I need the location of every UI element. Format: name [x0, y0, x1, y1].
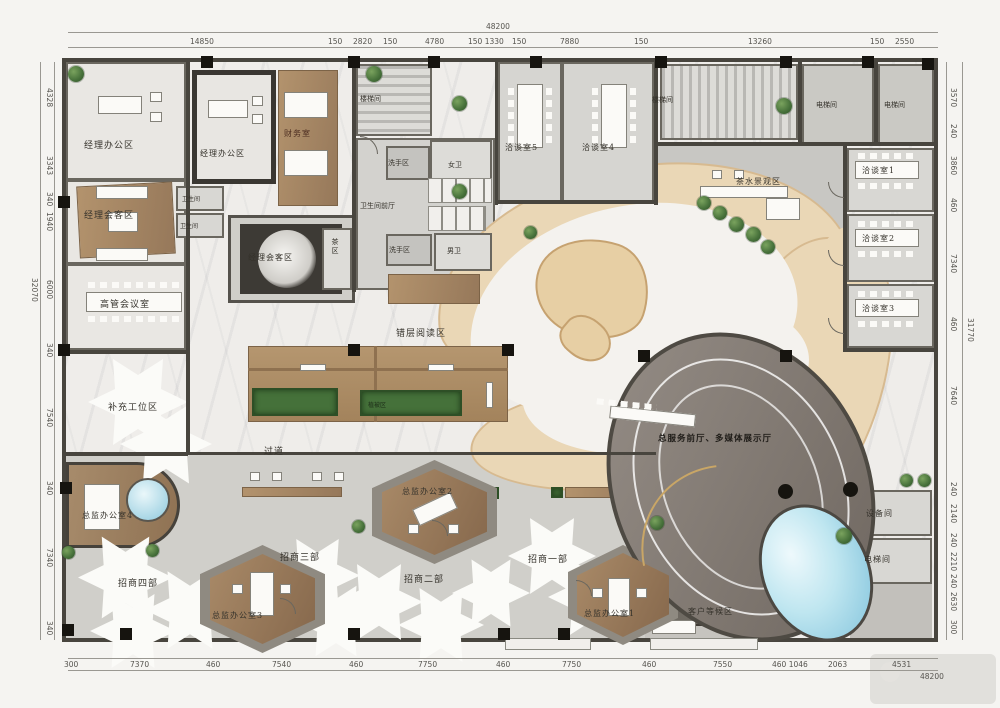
chair-col	[546, 88, 552, 144]
chair	[150, 112, 162, 122]
dim-top-seg-5: 150 1330	[468, 37, 504, 46]
room-manager-office-2	[192, 70, 276, 184]
column	[348, 344, 360, 356]
column	[502, 344, 514, 356]
label-reading-area: 错层阅读区	[396, 326, 446, 339]
plant-icon	[352, 520, 365, 533]
dim-right-seg-8: 2140	[949, 504, 958, 523]
column	[201, 56, 213, 68]
label-manager-lounge-left: 经理会客区	[84, 208, 134, 221]
label-director-office-3: 总监办公室3	[212, 610, 263, 621]
label-equipment-room: 设备间	[866, 508, 893, 519]
dim-bottom-seg-6: 460	[496, 660, 510, 669]
chair	[312, 472, 322, 481]
label-manager-office-2: 经理办公区	[200, 148, 245, 159]
plant-icon	[746, 227, 761, 242]
plant-icon	[697, 196, 711, 210]
plant-icon	[68, 66, 84, 82]
wall	[188, 452, 656, 455]
dim-left-seg-4: 6000	[45, 280, 54, 299]
dim-right-seg-13: 300	[949, 620, 958, 634]
dim-top-seg-6: 150	[512, 37, 526, 46]
chair	[448, 524, 459, 534]
plant-icon	[900, 474, 913, 487]
dim-bottom-seg-0: 300	[64, 660, 78, 669]
bench-counter	[242, 487, 342, 497]
bench	[428, 364, 454, 371]
label-director-office-2: 总监办公室2	[402, 486, 453, 497]
plant-icon	[146, 544, 159, 557]
entrance-step	[505, 638, 591, 650]
chair-row	[858, 251, 916, 257]
chair	[280, 584, 291, 594]
dim-line-bottom-overall	[68, 670, 938, 671]
plant-icon	[524, 226, 537, 239]
label-dept-1: 招商一部	[528, 552, 568, 565]
label-vegetation: 植被区	[368, 400, 386, 409]
wall	[658, 142, 803, 146]
counter	[766, 198, 800, 220]
bench	[486, 382, 493, 408]
room-manager-office-1	[66, 62, 186, 180]
chair	[636, 588, 647, 598]
plant-icon	[729, 217, 744, 232]
dim-right-seg-9: 240	[949, 533, 958, 547]
chair-row	[88, 282, 180, 288]
wall	[495, 62, 498, 205]
label-tea-landscape: 茶水景观区	[736, 176, 781, 187]
dim-top-seg-3: 150	[383, 37, 397, 46]
plant-icon	[918, 474, 931, 487]
label-stair-right: 楼梯间	[652, 95, 673, 105]
column	[120, 628, 132, 640]
desk	[98, 96, 142, 114]
dim-line-right-seg	[946, 62, 947, 640]
chair	[408, 524, 419, 534]
room-elevator-top-1	[802, 64, 874, 144]
dim-right-seg-7: 240	[949, 482, 958, 496]
dim-bottom-seg-11: 2063	[828, 660, 847, 669]
dim-top-seg-11: 2550	[895, 37, 914, 46]
dim-top-seg-8: 150	[634, 37, 648, 46]
dim-left-overall: 32070	[30, 278, 39, 302]
label-stair-left: 楼梯间	[360, 94, 381, 104]
chair-row	[858, 153, 916, 159]
chair	[272, 472, 282, 481]
label-wash-area-1: 洗手区	[388, 158, 409, 168]
plant-icon	[713, 206, 727, 220]
dim-line-left-seg	[54, 62, 55, 640]
column	[778, 484, 793, 499]
chair	[334, 472, 344, 481]
desk	[208, 100, 248, 118]
workstation	[284, 150, 328, 176]
dim-bottom-seg-2: 460	[206, 660, 220, 669]
dim-right-seg-2: 3860	[949, 156, 958, 175]
dim-line-right-overall	[962, 62, 963, 640]
wall	[64, 452, 188, 456]
label-meeting-2: 洽谈室2	[862, 233, 895, 244]
label-toilet-small-1: 卫生间	[182, 194, 200, 203]
wall	[186, 62, 190, 354]
dim-left-seg-5: 340	[45, 343, 54, 357]
label-mens-toilet: 男卫	[447, 246, 461, 256]
column	[498, 628, 510, 640]
label-service-hall: 总服务前厅、多媒体展示厅	[658, 432, 772, 444]
chair	[150, 92, 162, 102]
chair-row	[858, 221, 916, 227]
desk	[84, 484, 120, 530]
chair-col	[592, 88, 598, 144]
planter	[252, 388, 338, 416]
dim-left-seg-8: 7340	[45, 548, 54, 567]
sofa	[96, 186, 148, 199]
dim-line-left-overall	[40, 62, 41, 640]
label-manager-lounge-center: 经理会客区	[248, 252, 293, 263]
column	[60, 482, 72, 494]
column	[862, 56, 874, 68]
plant-icon	[452, 96, 467, 111]
bench	[300, 364, 326, 371]
dim-bottom-seg-10: 460 1046	[772, 660, 808, 669]
dim-bottom-seg-7: 7750	[562, 660, 581, 669]
chair	[252, 96, 263, 106]
wall	[352, 62, 356, 292]
dim-line-top-overall	[68, 32, 938, 33]
dim-left-seg-7: 340	[45, 481, 54, 495]
sofa	[96, 248, 148, 261]
dim-left-seg-1: 3343	[45, 156, 54, 175]
dim-right-seg-1: 240	[949, 124, 958, 138]
column	[655, 56, 667, 68]
plant-icon	[836, 528, 852, 544]
dim-line-bottom-seg	[68, 658, 938, 659]
label-dept-4: 招商四部	[118, 576, 158, 589]
dim-right-seg-4: 7340	[949, 254, 958, 273]
label-tea-area: 茶区	[330, 238, 340, 256]
label-elevator-top-1: 电梯间	[816, 100, 837, 110]
column	[58, 344, 70, 356]
column	[348, 628, 360, 640]
room-mens-toilet	[434, 233, 492, 271]
plant-icon	[62, 546, 75, 559]
column	[62, 624, 74, 636]
label-waiting-area: 客户等候区	[688, 606, 733, 617]
dim-right-seg-6: 7640	[949, 386, 958, 405]
dim-left-seg-6: 7540	[45, 408, 54, 427]
label-corridor: 过道	[264, 444, 284, 457]
chair-row	[858, 183, 916, 189]
label-dept-3: 招商三部	[280, 550, 320, 563]
conference-table	[601, 84, 627, 148]
label-dept-2: 招商二部	[404, 572, 444, 585]
label-toilet-small-2: 卫生间	[180, 221, 198, 230]
dim-right-seg-5: 460	[949, 317, 958, 331]
plant-icon	[776, 98, 792, 114]
dim-line-top-seg	[68, 47, 938, 48]
plant-icon	[650, 516, 664, 530]
column	[638, 350, 650, 362]
dim-right-overall: 31770	[966, 318, 975, 342]
wall	[654, 62, 658, 205]
dim-bottom-seg-12: 4531	[892, 660, 911, 669]
label-womens-toilet: 女卫	[448, 160, 462, 170]
platform-step	[248, 368, 508, 371]
wall	[498, 200, 656, 204]
dim-left-seg-9: 340	[45, 621, 54, 635]
chair	[250, 472, 260, 481]
column	[780, 56, 792, 68]
wall	[186, 352, 190, 455]
chair	[592, 588, 603, 598]
counter	[700, 186, 788, 198]
dim-right-seg-10: 2210	[949, 552, 958, 571]
chair-row	[88, 316, 180, 322]
column	[922, 58, 934, 70]
wall	[798, 62, 802, 146]
chair	[712, 170, 722, 179]
workstation	[284, 92, 328, 118]
label-exec-meeting: 高管会议室	[100, 297, 150, 310]
wall	[874, 62, 878, 146]
label-extra-workstations: 补充工位区	[108, 400, 158, 413]
chair	[232, 584, 243, 594]
dim-right-seg-12: 2630	[949, 592, 958, 611]
plant-icon	[452, 184, 467, 199]
label-wash-area-2: 洗手区	[389, 245, 410, 255]
label-meeting-5: 洽谈室5	[505, 142, 538, 153]
planter	[551, 487, 563, 498]
label-elevator-top-2: 电梯间	[884, 100, 905, 110]
column	[780, 350, 792, 362]
label-manager-office-1: 经理办公区	[84, 138, 134, 151]
column	[843, 482, 858, 497]
entrance-step	[650, 638, 758, 650]
dim-right-seg-11: 240	[949, 574, 958, 588]
dim-bottom-seg-9: 7550	[713, 660, 732, 669]
column	[530, 56, 542, 68]
wall	[802, 142, 935, 146]
dim-bottom-seg-1: 7370	[130, 660, 149, 669]
conference-table	[517, 84, 543, 148]
wall	[843, 348, 936, 352]
label-meeting-3: 洽谈室3	[862, 303, 895, 314]
dim-top-seg-9: 13260	[748, 37, 772, 46]
label-toilet-foyer: 卫生间前厅	[360, 201, 395, 211]
plant-icon	[761, 240, 775, 254]
dim-left-seg-2: 340	[45, 192, 54, 206]
floor-plan-canvas: 48200 14850 150 2820 150 4780 150 1330 1…	[0, 0, 1000, 708]
dim-top-overall: 48200	[486, 22, 510, 31]
dim-top-seg-10: 150	[870, 37, 884, 46]
plant-icon	[366, 66, 382, 82]
label-meeting-4: 洽谈室4	[582, 142, 615, 153]
column	[348, 56, 360, 68]
chair-col	[630, 88, 636, 144]
label-director-office-1: 总监办公室1	[584, 608, 635, 619]
label-director-office-4: 总监办公室4	[82, 510, 133, 521]
column	[428, 56, 440, 68]
dim-bottom-overall: 48200	[920, 672, 944, 681]
dim-left-seg-0: 4328	[45, 88, 54, 107]
dim-bottom-seg-5: 7750	[418, 660, 437, 669]
chair-row	[858, 291, 916, 297]
bench-counter	[388, 274, 480, 304]
label-meeting-1: 洽谈室1	[862, 165, 895, 176]
dim-top-seg-0: 14850	[190, 37, 214, 46]
label-finance-room: 财务室	[284, 128, 311, 139]
chair-row	[858, 321, 916, 327]
toilet-stalls	[428, 206, 486, 231]
column	[558, 628, 570, 640]
label-elevator-bottom: 电梯间	[864, 554, 891, 565]
dim-top-seg-4: 4780	[425, 37, 444, 46]
dim-right-seg-3: 460	[949, 198, 958, 212]
dim-top-seg-2: 2820	[353, 37, 372, 46]
wall	[64, 350, 190, 354]
column	[58, 196, 70, 208]
dim-top-seg-1: 150	[328, 37, 342, 46]
chair	[252, 114, 263, 124]
dim-bottom-seg-8: 460	[642, 660, 656, 669]
dim-top-seg-7: 7880	[560, 37, 579, 46]
dim-right-seg-0: 3570	[949, 88, 958, 107]
dim-left-seg-3: 1940	[45, 212, 54, 231]
dim-bottom-seg-3: 7540	[272, 660, 291, 669]
dim-bottom-seg-4: 460	[349, 660, 363, 669]
chair-col	[508, 88, 514, 144]
